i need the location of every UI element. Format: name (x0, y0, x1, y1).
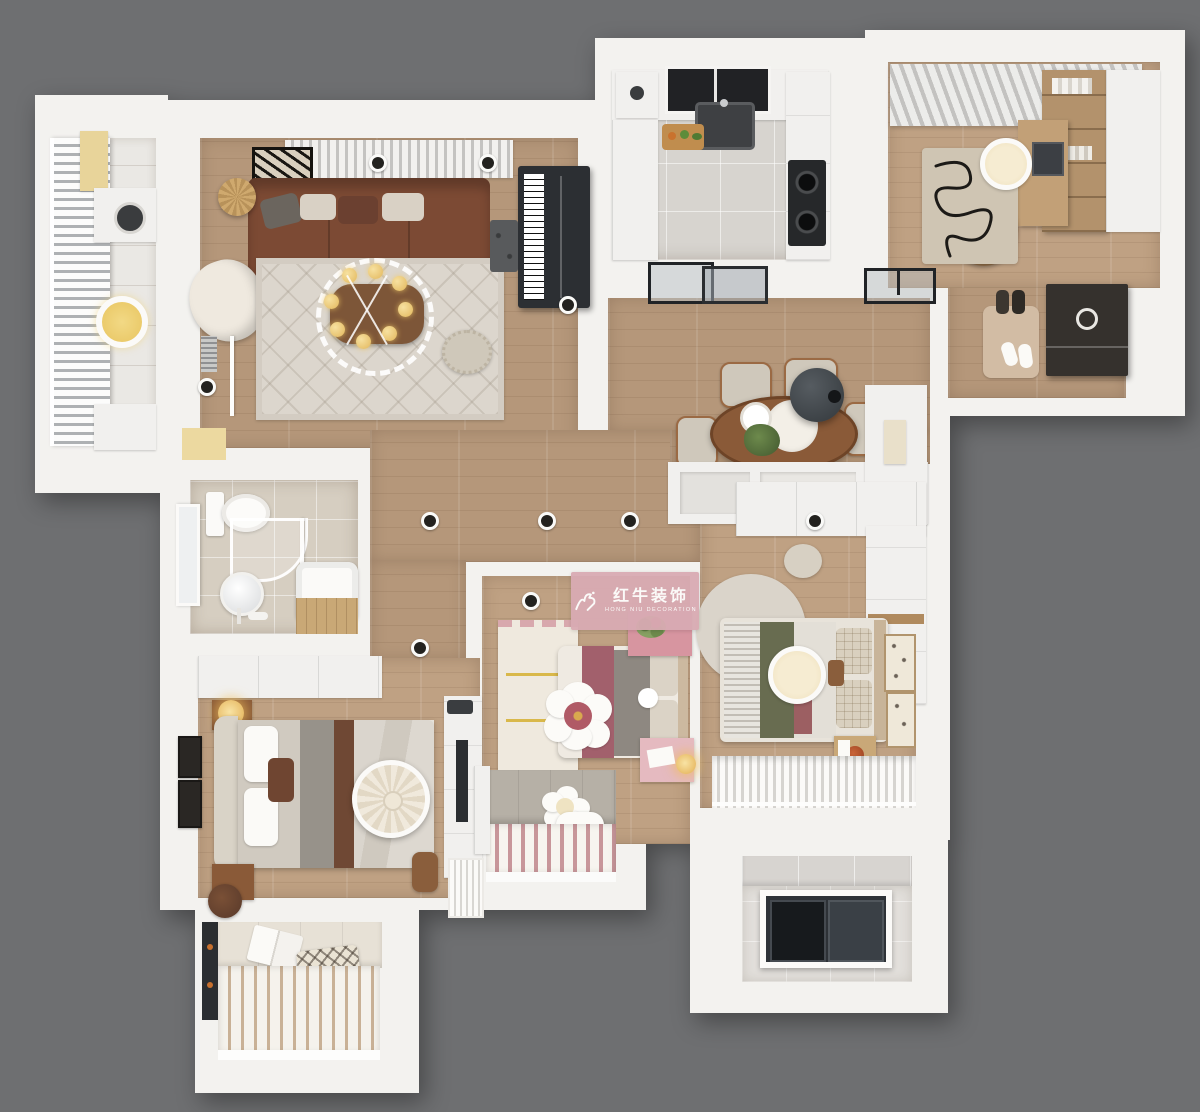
radiator (201, 336, 217, 372)
study-sliding-door (864, 268, 936, 304)
bay-side-shelf (474, 766, 490, 854)
room-utility (690, 815, 948, 1013)
laptop (1032, 142, 1064, 176)
vegetable (668, 132, 676, 140)
cabinet-handle (1076, 308, 1098, 330)
downlight (479, 154, 497, 172)
downlight (559, 296, 577, 314)
downlight (421, 512, 439, 530)
window-handle (207, 944, 213, 950)
study-cabinet (1106, 70, 1160, 232)
kitchen-appliance (616, 72, 658, 118)
bathroom-window (176, 504, 200, 606)
room-nook (195, 893, 419, 1093)
downlight (538, 512, 556, 530)
door-mat-yellow (182, 428, 226, 460)
cabinet-edge (1046, 346, 1128, 348)
vegetable (680, 130, 689, 139)
balcony-cabinet (80, 131, 108, 191)
chandelier-bulb (330, 322, 345, 337)
bed-runner-brown (334, 720, 354, 868)
kitchen-sliding-door (648, 262, 764, 300)
bed2-pillow (836, 680, 872, 728)
downlight (198, 378, 216, 396)
bed-headboard (214, 716, 238, 870)
room-living (160, 100, 610, 468)
nook-mat (218, 966, 380, 1054)
window-glass-dark (766, 896, 886, 962)
floor-lamp (218, 178, 256, 216)
room-entry (940, 228, 1185, 416)
study-ceiling-light (980, 138, 1032, 190)
chandelier-bulb (368, 264, 383, 279)
faucet (720, 99, 728, 107)
shoe-cabinet (1046, 284, 1128, 376)
chandelier-bulb (398, 302, 413, 317)
room-balcony (35, 95, 168, 493)
wall-frame (178, 780, 202, 828)
pouf (442, 330, 492, 374)
mirror-stand (237, 608, 241, 624)
flower-pillow (638, 688, 658, 708)
cutting-board (662, 124, 704, 150)
balcony-ledge (94, 404, 156, 450)
downlight (806, 512, 824, 530)
kitchen-sink (695, 102, 755, 150)
shoe (1012, 290, 1025, 314)
balcony-tile-floor (106, 138, 156, 446)
room-master (160, 650, 480, 910)
window-pane (828, 900, 884, 962)
herb (692, 133, 702, 140)
balcony-ceiling-light (96, 296, 148, 348)
faucet-set (248, 612, 268, 620)
sofa-pillow-cream (300, 194, 336, 220)
bull-logo-icon (573, 586, 599, 616)
fan-hub (383, 791, 403, 811)
master-wardrobe (198, 656, 382, 698)
shoe (996, 290, 1009, 314)
window-mullion (714, 69, 717, 105)
room-bathroom (160, 460, 375, 655)
notecard (838, 740, 850, 756)
bed2-sheet-striped (724, 622, 760, 738)
door-pane-line (897, 271, 900, 295)
door-pane (702, 266, 768, 304)
table-plant (744, 424, 780, 456)
bedroom2-curtains (712, 756, 916, 808)
chandelier-bulb (324, 294, 339, 309)
chandelier-bulb (356, 334, 371, 349)
pegboard-frame (884, 634, 916, 692)
downlight (411, 639, 429, 657)
window-handle (207, 982, 213, 988)
flower-rug (544, 682, 612, 750)
downlight (522, 592, 540, 610)
piano (518, 166, 590, 308)
piano-lid-line (560, 176, 562, 298)
downlight (369, 154, 387, 172)
laundry-sink (114, 202, 146, 234)
stove (788, 160, 826, 246)
bedroom2-ceiling-light (768, 646, 826, 704)
brand-name-en: HONG NIU DECORATION (605, 608, 697, 614)
downlight (621, 512, 639, 530)
chandelier-bulb (392, 276, 407, 291)
vanity-mirror (220, 572, 264, 616)
pegboard-frame (886, 692, 916, 748)
sofa-pillow-cream2 (382, 193, 424, 221)
utility-wall-tile (742, 856, 912, 886)
paper-art (884, 420, 906, 464)
window-pane (770, 900, 826, 962)
bay-sill (486, 872, 616, 882)
glass-partition (230, 336, 234, 416)
floorplan-render: 红牛装饰 HONG NIU DECORATION (0, 0, 1200, 1112)
handbag (412, 852, 438, 892)
piano-bench (490, 220, 518, 272)
bed-cushion-brown (268, 758, 294, 802)
nook-edge-board (218, 1050, 380, 1060)
room-kitchen (595, 38, 880, 300)
sofa-pillow-brown (338, 196, 378, 224)
piano-keys (524, 174, 544, 300)
wall-frame (178, 736, 202, 778)
laundry-counter (94, 188, 156, 242)
chandelier (322, 264, 414, 356)
bed-runner-gray (300, 720, 334, 868)
nook-window (202, 922, 218, 1020)
books (1052, 78, 1092, 94)
pendant-knob (828, 390, 841, 403)
bed2-cushion (828, 660, 844, 686)
flower-rug-center (564, 702, 592, 730)
brand-text-block: 红牛装饰 HONG NIU DECORATION (605, 589, 697, 614)
bay-mat-pink (486, 824, 616, 874)
brand-watermark: 红牛装饰 HONG NIU DECORATION (571, 572, 699, 630)
rattan-ceiling-fan (352, 760, 430, 838)
appliance-dial (630, 86, 644, 100)
utility-window (760, 890, 892, 968)
bathtub-apron (296, 598, 358, 634)
kitchen-cabinets-left (612, 120, 658, 260)
curtain-rod (712, 802, 916, 806)
brand-name-cn: 红牛装饰 (613, 589, 689, 605)
pouf-small (784, 544, 822, 578)
